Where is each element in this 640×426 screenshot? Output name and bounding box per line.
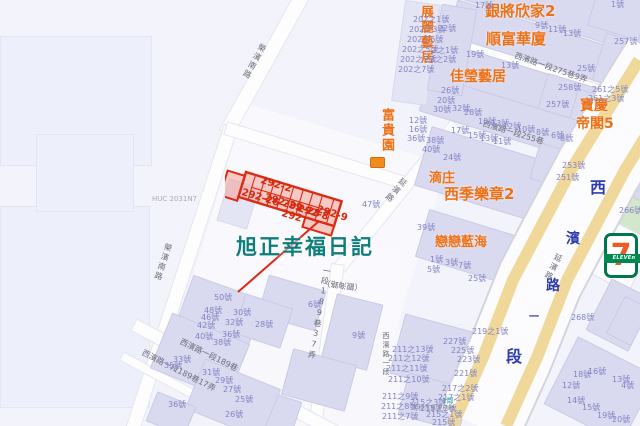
highway-name-char: 一 bbox=[529, 313, 539, 323]
building-block bbox=[415, 209, 522, 285]
misc-label: HUC 2031N7 bbox=[152, 196, 197, 203]
house-number-label: 12號 bbox=[409, 117, 427, 125]
project-title: 旭正幸福日記 bbox=[236, 231, 374, 261]
highlighted-parcel[interactable] bbox=[225, 150, 365, 300]
highway-name-char: 路 bbox=[546, 279, 560, 293]
seven-eleven-band: ELEVEn bbox=[604, 254, 640, 263]
seven-eleven-eleven-text: ELEVEn bbox=[604, 254, 640, 263]
highway-name-char: 西 bbox=[590, 180, 606, 196]
house-number-label: 36號 bbox=[407, 135, 425, 143]
map-canvas[interactable]: 銀將欣家2順富華廈佳瑩藝居寶慶帝閣5展麗藝居富貴園滴庄西季樂章2戀戀藍海西濱路一… bbox=[0, 0, 640, 426]
road-name-label: 榮濱南路 bbox=[153, 242, 173, 283]
seven-eleven-logo[interactable]: 7 ELEVEn bbox=[604, 233, 638, 278]
pond-area bbox=[0, 206, 150, 408]
house-number-label: 5號 bbox=[427, 266, 440, 274]
house-number-label: 219之1號 bbox=[472, 328, 508, 336]
road-name-label: 延濱路 bbox=[542, 252, 563, 282]
highway-name-char: 段 bbox=[506, 349, 522, 365]
highway-name-char: 濱 bbox=[566, 232, 580, 246]
pond-area bbox=[36, 134, 134, 212]
house-number-label: 16號 bbox=[409, 126, 427, 134]
poi-marker-icon bbox=[370, 157, 385, 168]
